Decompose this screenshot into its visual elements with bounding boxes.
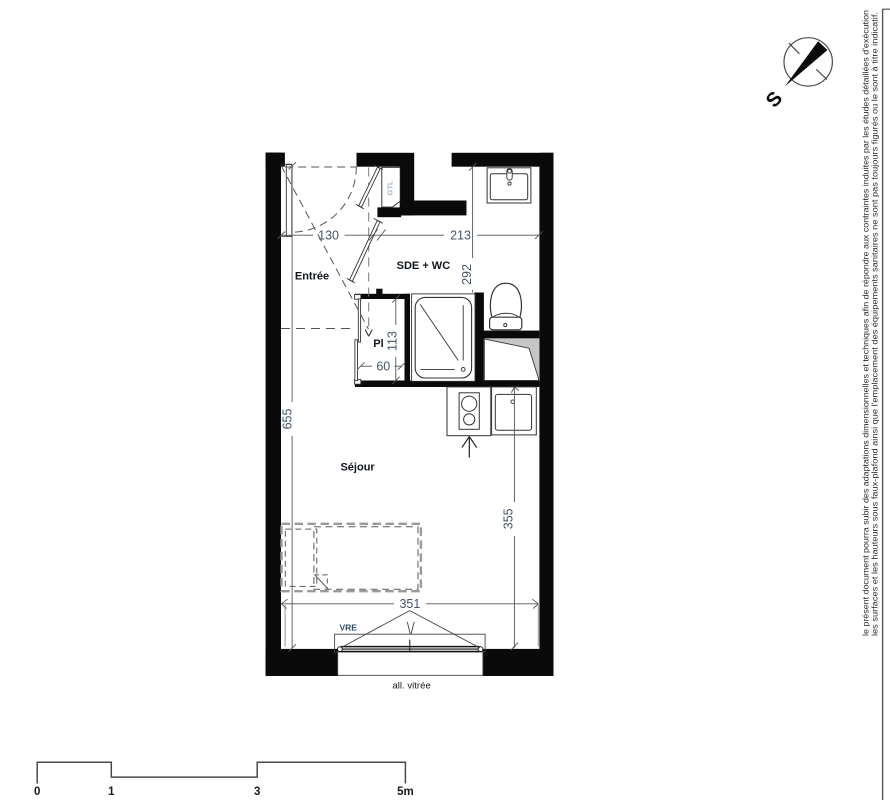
svg-text:Séjour: Séjour — [340, 461, 375, 473]
svg-text:SDE + WC: SDE + WC — [397, 260, 451, 272]
svg-text:Entrée: Entrée — [295, 270, 329, 282]
svg-text:351: 351 — [399, 597, 420, 611]
svg-text:Pl: Pl — [373, 338, 383, 350]
svg-text:0: 0 — [34, 786, 40, 798]
svg-text:VRE: VRE — [339, 623, 357, 633]
svg-text:655: 655 — [280, 409, 294, 430]
svg-text:3: 3 — [254, 786, 260, 798]
svg-text:213: 213 — [450, 228, 471, 242]
svg-text:130: 130 — [318, 228, 339, 242]
svg-text:5m: 5m — [397, 786, 414, 798]
svg-text:60: 60 — [376, 360, 390, 374]
svg-text:1: 1 — [108, 786, 115, 798]
svg-text:292: 292 — [460, 264, 474, 285]
svg-text:113: 113 — [385, 331, 399, 351]
svg-text:le présent document pourra sub: le présent document pourra subir des ada… — [862, 10, 871, 636]
svg-text:GTL: GTL — [385, 180, 394, 195]
svg-text:all. vitrée: all. vitrée — [392, 680, 430, 691]
svg-text:355: 355 — [501, 508, 515, 529]
svg-text:les surfaces et les hauteurs s: les surfaces et les hauteurs sous faux-p… — [871, 12, 880, 636]
